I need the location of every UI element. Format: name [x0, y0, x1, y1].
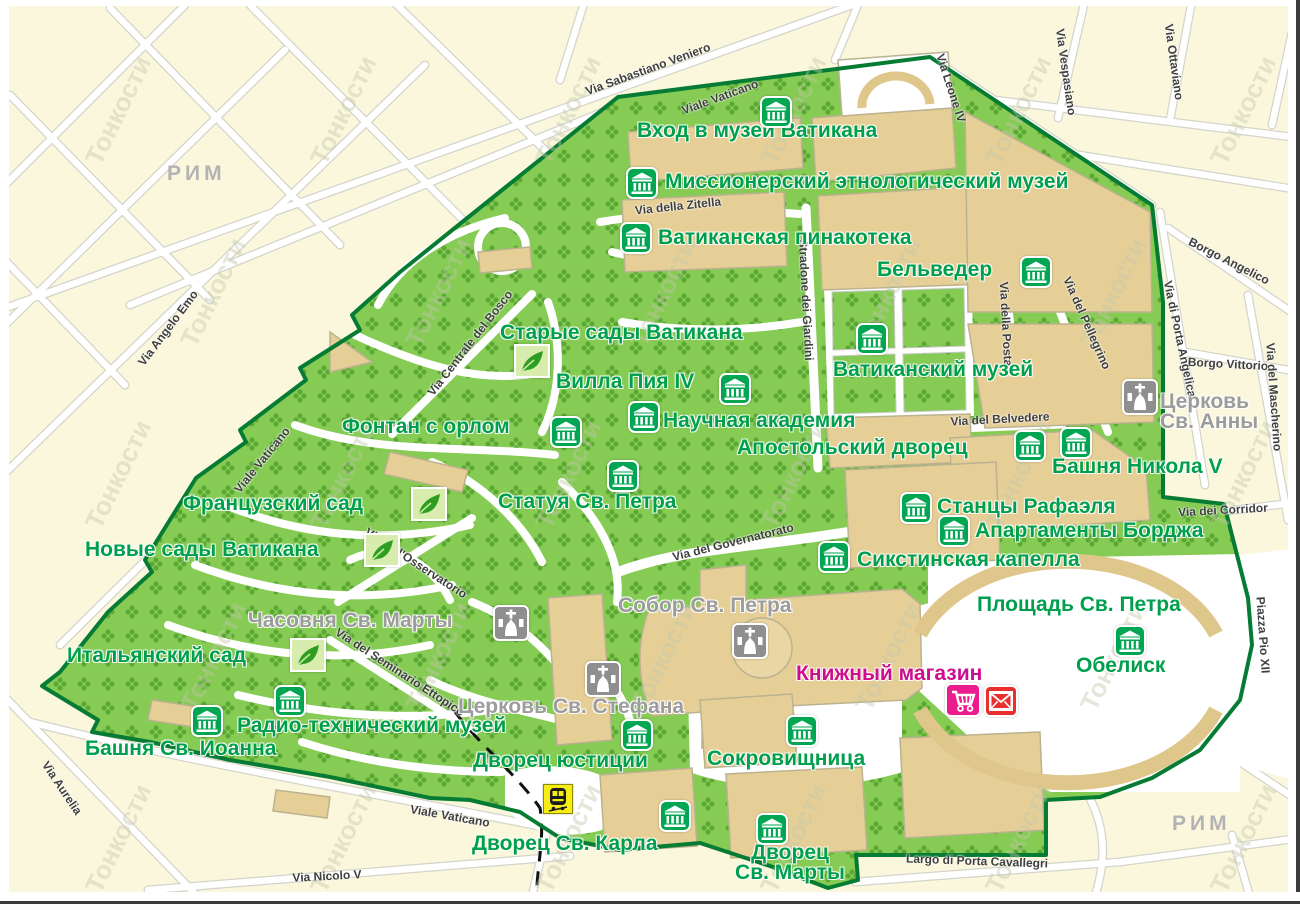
poi-label-dvorets-karla: Дворец Св. Карла: [472, 834, 658, 854]
poi-label-apostolskiy-dvorets: Апостольский дворец: [737, 438, 968, 458]
poi-label-statuya-sv-petra: Статуя Св. Петра: [498, 492, 676, 512]
region-label-rim-se: РИМ: [1172, 812, 1231, 836]
poi-label-novye-sady: Новые сады Ватикана: [85, 540, 319, 560]
poi-label-fontan-s-orlom: Фонтан с орлом: [342, 417, 510, 437]
poi-label-belveder: Бельведер: [877, 260, 992, 280]
poi-label-sobor-sv-petra: Собор Св. Петра: [618, 596, 792, 616]
poi-label-villa-pia: Вилла Пия IV: [556, 372, 694, 392]
poi-label-pinakoteka: Ватиканская пинакотека: [658, 228, 912, 248]
poi-label-tserkov-stefana: Церковь Св. Стефана: [458, 697, 684, 717]
vatican-map: ТонкостиТонкостиТонкостиТонкостиТонкости…: [0, 0, 1300, 904]
poi-label-vhod-muzey: Вход в музей Ватикана: [637, 121, 877, 141]
poi-label-sikstinskaya-kapella: Сикстинская капелла: [857, 550, 1080, 570]
region-label-rim-nw: РИМ: [167, 162, 226, 186]
poi-label-dvorets-marty: Дворец Св. Марты: [735, 843, 845, 883]
poi-label-dvorets-yustitsii: Дворец юстиции: [473, 751, 648, 771]
poi-label-radio-muzey: Радио-технический музей: [237, 716, 506, 736]
poi-label-chasovnya-sv-marty: Часовня Св. Марты: [248, 611, 453, 631]
poi-label-missionerskiy-muzey: Миссионерский этнологический музей: [665, 172, 1069, 192]
poi-label-apartamenty-bordzha: Апартаменты Борджа: [975, 521, 1203, 541]
poi-label-stantsy-rafaelya: Станцы Рафаэля: [937, 497, 1116, 517]
poi-label-bashnya-ioanna: Башня Св. Иоанна: [85, 739, 276, 759]
poi-label-starye-sady: Старые сады Ватикана: [500, 323, 743, 343]
poi-label-bashnya-nikola: Башня Никола V: [1052, 457, 1223, 477]
poi-label-nauchnaya-akademiya: Научная академия: [663, 411, 855, 431]
poi-label-frantsuzskiy-sad: Французский сад: [183, 494, 363, 514]
basilica-dome: [732, 618, 792, 678]
poi-label-ploshchad-sv-petra: Площадь Св. Петра: [977, 595, 1181, 615]
poi-label-knizhny-magazin: Книжный магазин: [796, 664, 982, 684]
poi-label-sokrovishchnitsa: Сокровищница: [707, 749, 865, 769]
poi-label-obelisk: Обелиск: [1076, 656, 1165, 676]
poi-label-vatikanskiy-muzey: Ватиканский музей: [833, 360, 1033, 380]
poi-label-tserkov-anny: Церковь Св. Анны: [1160, 392, 1258, 432]
poi-label-italyanskiy-sad: Итальянский сад: [67, 646, 246, 666]
